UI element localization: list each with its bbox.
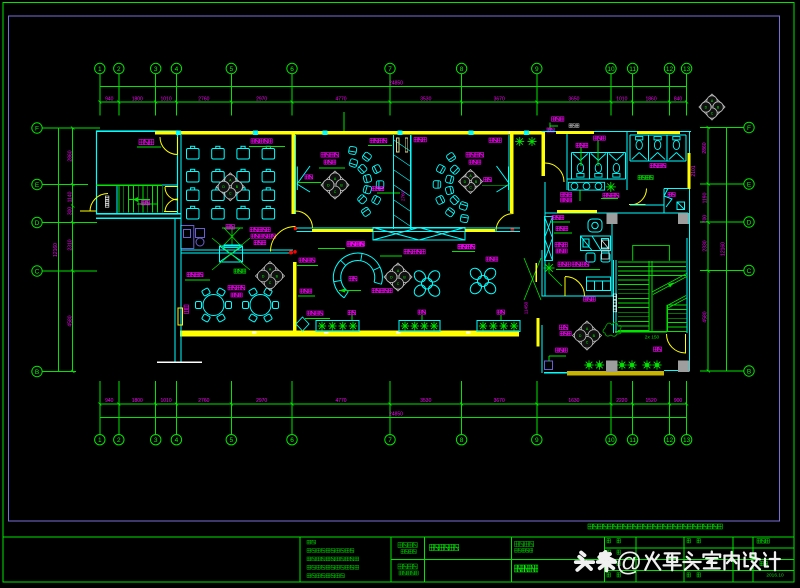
svg-text:4770: 4770 [335,96,346,102]
svg-text:F: F [747,125,751,132]
svg-text:3: 3 [154,437,158,444]
svg-text:7: 7 [388,437,392,444]
svg-text:2860: 2860 [702,142,708,153]
svg-text:4580: 4580 [68,315,74,326]
svg-text:940: 940 [105,96,114,102]
svg-text:2220: 2220 [616,398,627,404]
svg-text:6: 6 [290,66,294,73]
svg-text:2860: 2860 [68,150,74,161]
svg-text:940: 940 [105,398,114,404]
svg-text:2310: 2310 [68,239,74,250]
svg-text:1630: 1630 [568,398,579,404]
svg-text:2101: 2101 [691,165,697,176]
svg-text:1190: 1190 [703,192,709,203]
svg-text:C: C [35,268,40,275]
svg-text:1: 1 [98,437,102,444]
svg-text:F: F [35,125,39,132]
svg-text:9: 9 [535,66,539,73]
svg-text:2330: 2330 [703,240,709,251]
svg-text:1800: 1800 [132,96,143,102]
svg-text:10: 10 [607,437,615,444]
svg-text:8: 8 [460,437,464,444]
svg-text:13: 13 [683,66,691,73]
svg-text:5: 5 [229,437,233,444]
svg-text:1800: 1800 [132,398,143,404]
svg-text:3530: 3530 [420,398,431,404]
svg-text:10: 10 [607,66,615,73]
svg-text:6: 6 [290,437,294,444]
svg-text:1010: 1010 [616,96,627,102]
svg-text:24850: 24850 [389,80,403,86]
svg-text:2760: 2760 [198,96,209,102]
svg-text:840: 840 [674,96,683,102]
svg-text:1520: 1520 [645,398,656,404]
svg-text:4: 4 [175,437,179,444]
svg-text:700: 700 [703,215,709,224]
svg-text:4580: 4580 [703,311,709,322]
svg-text:E: E [747,181,752,188]
svg-text:12160: 12160 [721,242,727,256]
svg-text:1: 1 [98,66,102,73]
svg-text:1140: 1140 [68,191,74,202]
svg-text:3650: 3650 [568,96,579,102]
svg-text:11: 11 [629,66,636,73]
svg-text:24850: 24850 [389,411,403,417]
svg-text:C: C [747,268,752,275]
svg-text:1010: 1010 [160,398,171,404]
svg-text:2x 150: 2x 150 [645,335,660,341]
svg-text:11450: 11450 [524,301,529,314]
svg-text:11: 11 [629,437,636,444]
svg-text:3670: 3670 [494,96,505,102]
svg-text:13: 13 [683,437,691,444]
svg-text:7: 7 [388,66,392,73]
svg-text:E: E [35,182,40,189]
svg-text:4770: 4770 [335,398,346,404]
svg-text:5: 5 [229,66,233,73]
svg-text:300: 300 [68,207,74,216]
svg-text:2016.10: 2016.10 [766,573,784,579]
svg-text:3670: 3670 [494,398,505,404]
svg-text:B: B [747,368,751,375]
svg-text:B: B [35,369,39,376]
svg-text:2: 2 [117,437,121,444]
svg-text:4: 4 [175,66,179,73]
svg-text:2760: 2760 [198,398,209,404]
svg-text:9: 9 [535,437,539,444]
svg-text:8: 8 [460,66,464,73]
svg-text:2970: 2970 [256,398,267,404]
svg-text:D: D [35,220,40,227]
svg-text:2760: 2760 [401,190,406,201]
svg-text:12160: 12160 [53,243,59,257]
svg-text:1010: 1010 [160,96,171,102]
svg-text:3: 3 [154,66,158,73]
svg-text:@: @ [616,547,642,577]
svg-text:12: 12 [666,437,674,444]
svg-text:2: 2 [117,66,121,73]
svg-text:D: D [747,219,752,226]
svg-text:12: 12 [666,66,674,73]
svg-text:2970: 2970 [256,96,267,102]
svg-text:3530: 3530 [420,96,431,102]
svg-text:900: 900 [674,398,683,404]
svg-text:1860: 1860 [645,96,656,102]
